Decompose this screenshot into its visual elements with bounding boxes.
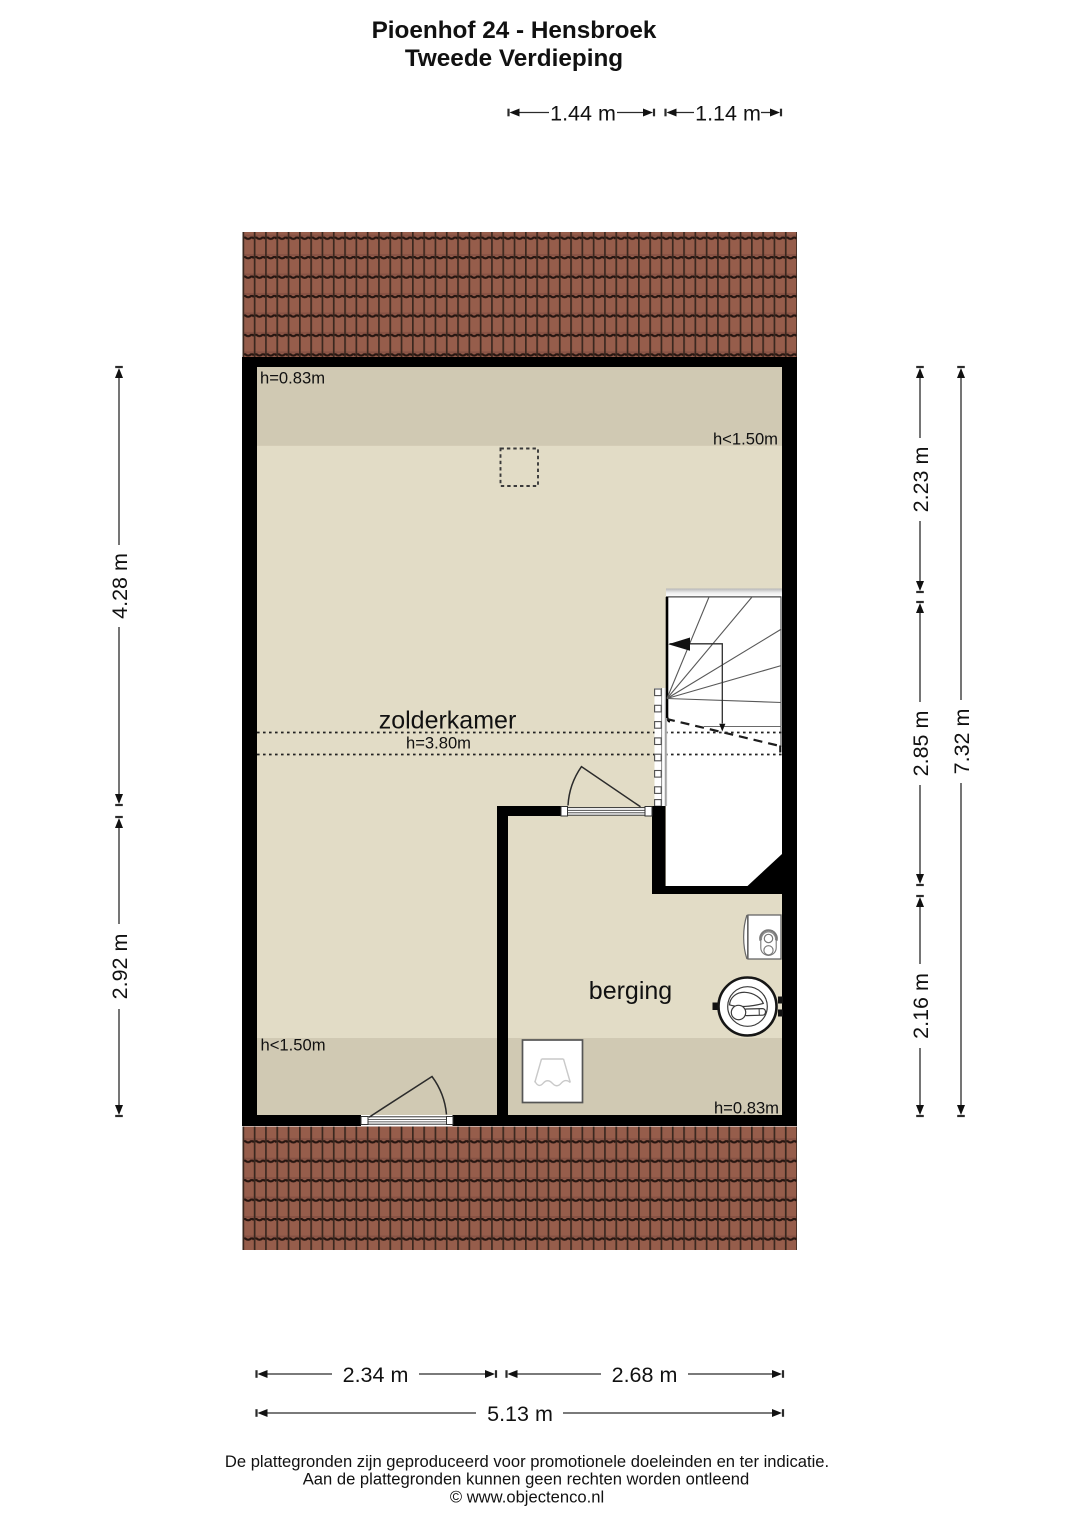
svg-text:zolderkamer: zolderkamer <box>379 707 517 735</box>
svg-text:De plattegronden zijn geproduc: De plattegronden zijn geproduceerd voor … <box>225 1452 829 1471</box>
svg-text:Pioenhof 24 - Hensbroek: Pioenhof 24 - Hensbroek <box>372 17 657 44</box>
svg-text:4.28 m: 4.28 m <box>108 553 132 619</box>
svg-text:2.34 m: 2.34 m <box>343 1363 409 1387</box>
svg-text:h=3.80m: h=3.80m <box>406 734 471 753</box>
svg-text:2.23 m: 2.23 m <box>909 447 933 513</box>
svg-text:h=0.83m: h=0.83m <box>714 1099 779 1118</box>
svg-text:2.85 m: 2.85 m <box>909 711 933 777</box>
svg-text:berging: berging <box>589 977 672 1005</box>
svg-text:1.14 m: 1.14 m <box>695 101 761 125</box>
svg-text:© www.objectenco.nl: © www.objectenco.nl <box>450 1488 604 1507</box>
svg-text:7.32 m: 7.32 m <box>950 709 974 775</box>
svg-text:Aan de plattegronden kunnen ge: Aan de plattegronden kunnen geen rechten… <box>303 1470 750 1489</box>
svg-text:5.13 m: 5.13 m <box>487 1402 553 1426</box>
svg-text:h<1.50m: h<1.50m <box>713 430 778 449</box>
svg-text:Tweede Verdieping: Tweede Verdieping <box>405 45 623 72</box>
svg-text:h<1.50m: h<1.50m <box>261 1036 326 1055</box>
svg-text:2.92 m: 2.92 m <box>108 934 132 1000</box>
svg-text:1.44 m: 1.44 m <box>550 101 616 125</box>
svg-text:2.68 m: 2.68 m <box>612 1363 678 1387</box>
svg-text:h=0.83m: h=0.83m <box>260 369 325 388</box>
svg-text:2.16 m: 2.16 m <box>909 973 933 1039</box>
